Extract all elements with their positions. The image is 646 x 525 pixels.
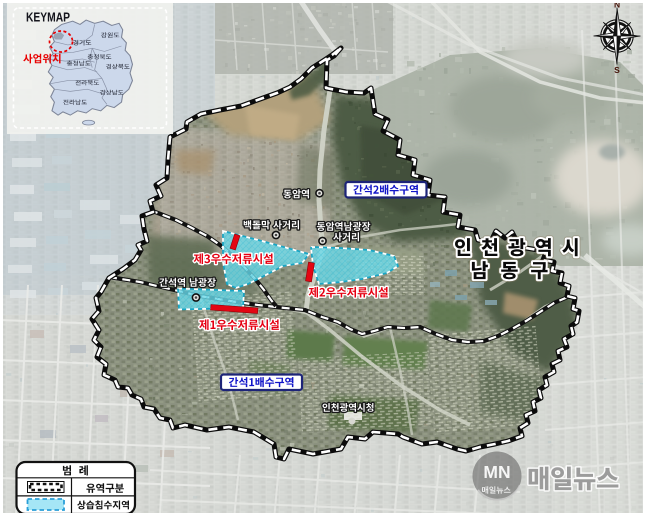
svg-text:KEYMAP: KEYMAP <box>26 11 70 25</box>
svg-text:N: N <box>614 0 620 9</box>
svg-text:MN: MN <box>483 462 510 482</box>
svg-text:S: S <box>614 65 620 75</box>
